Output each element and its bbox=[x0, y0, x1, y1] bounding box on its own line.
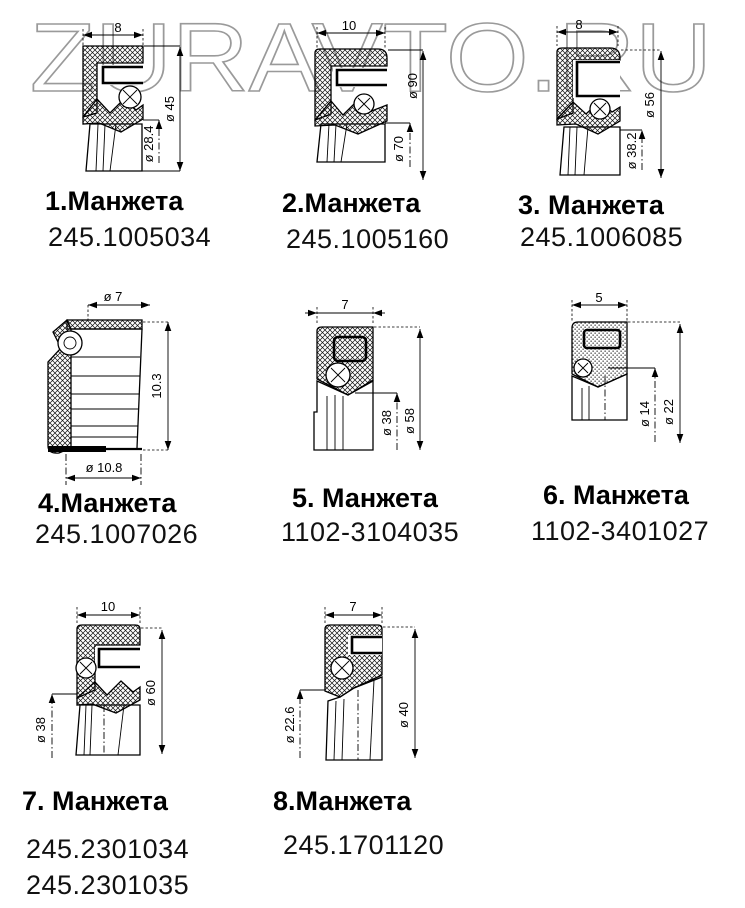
seal-2-dim-width: 10 bbox=[317, 20, 385, 48]
svg-text:ø 90: ø 90 bbox=[405, 73, 420, 99]
seal-7-body bbox=[76, 625, 140, 755]
seal-6-drawing: 5 ø 14 ø 22 bbox=[558, 292, 708, 454]
seal-1-body bbox=[83, 46, 143, 171]
seal-2-caption: 2.Манжета bbox=[282, 188, 420, 219]
seal-6-dim-width: 5 bbox=[572, 292, 627, 321]
seal-7-part-number-2: 245.2301035 bbox=[26, 870, 189, 901]
svg-text:10: 10 bbox=[101, 599, 115, 614]
svg-text:7: 7 bbox=[341, 297, 348, 312]
seal-3-body bbox=[557, 48, 620, 175]
seal-4-body bbox=[48, 320, 142, 453]
seal-8-dim-outer: ø 40 bbox=[383, 627, 415, 758]
seal-2-dim-inner: ø 70 bbox=[385, 123, 410, 167]
seal-4-drawing: ø 7 10.3 ø 10.8 bbox=[30, 288, 190, 492]
seal-1-part-number: 245.1005034 bbox=[48, 222, 211, 253]
seal-4-dim-bottom: ø 10.8 bbox=[66, 454, 141, 485]
svg-text:ø 38: ø 38 bbox=[33, 717, 48, 743]
seal-8-dim-width: 7 bbox=[325, 599, 382, 624]
seal-1-drawing: 8 ø 45 ø 28.4 bbox=[60, 20, 205, 188]
seal-4-caption: 4.Манжета bbox=[38, 488, 176, 519]
seal-1-dim-inner: ø 28.4 bbox=[141, 120, 159, 163]
seal-1-caption: 1.Манжета bbox=[45, 186, 183, 217]
seal-3-dim-width: 8 bbox=[557, 18, 618, 46]
seal-8-dim-inner: ø 22.6 bbox=[282, 690, 325, 758]
seal-5-body bbox=[314, 327, 373, 450]
seal-6-part-number: 1102-3401027 bbox=[531, 516, 709, 547]
svg-text:10: 10 bbox=[342, 20, 356, 33]
svg-text:ø 28.4: ø 28.4 bbox=[141, 126, 156, 163]
svg-text:ø 58: ø 58 bbox=[402, 408, 417, 434]
seal-7-dim-inner: ø 38 bbox=[33, 694, 77, 758]
seal-5-dim-width: 7 bbox=[305, 297, 385, 325]
svg-text:ø 70: ø 70 bbox=[391, 136, 406, 162]
svg-text:ø 38.2: ø 38.2 bbox=[624, 133, 639, 170]
seal-8-caption: 8.Манжета bbox=[273, 786, 411, 817]
seal-6-caption: 6. Манжета bbox=[543, 480, 689, 511]
seal-4-part-number: 245.1007026 bbox=[35, 519, 198, 550]
seal-2-body bbox=[315, 49, 387, 162]
seal-7-part-number: 245.2301034 bbox=[26, 834, 189, 865]
seal-5-part-number: 1102-3104035 bbox=[281, 517, 459, 548]
seal-5-caption: 5. Манжета bbox=[292, 483, 438, 514]
svg-text:ø 45: ø 45 bbox=[162, 96, 177, 122]
svg-text:ø 56: ø 56 bbox=[642, 92, 657, 118]
seal-3-caption: 3. Манжета bbox=[518, 190, 664, 221]
spring-ring bbox=[58, 331, 82, 355]
seal-3-part-number: 245.1006085 bbox=[520, 222, 683, 253]
seal-6-dim-outer: ø 22 bbox=[628, 322, 680, 443]
svg-text:ø 40: ø 40 bbox=[396, 702, 411, 728]
seal-8-body bbox=[325, 625, 382, 760]
seal-7-drawing: 10 ø 38 ø 60 bbox=[28, 598, 198, 778]
seal-1-dim-width: 8 bbox=[83, 20, 143, 45]
seal-2-part-number: 245.1005160 bbox=[286, 224, 449, 255]
svg-text:ø 38: ø 38 bbox=[379, 410, 394, 436]
svg-text:ø 22: ø 22 bbox=[661, 399, 676, 425]
svg-text:ø 60: ø 60 bbox=[143, 680, 158, 706]
seal-3-drawing: 8 ø 56 ø 38.2 bbox=[540, 18, 705, 196]
seal-8-drawing: 7 ø 22.6 ø 40 bbox=[282, 598, 457, 778]
seal-7-dim-outer: ø 60 bbox=[141, 628, 162, 754]
svg-text:8: 8 bbox=[114, 20, 121, 35]
svg-text:8: 8 bbox=[575, 18, 582, 32]
seal-6-body bbox=[572, 322, 627, 420]
seal-7-dim-width: 10 bbox=[77, 599, 140, 624]
seal-4-dim-width: ø 7 bbox=[88, 289, 150, 320]
seal-5-drawing: 7 ø 38 ø 58 bbox=[300, 295, 450, 457]
svg-text:ø 7: ø 7 bbox=[104, 289, 123, 304]
seal-2-drawing: 10 ø 90 ø 70 bbox=[295, 20, 445, 185]
svg-text:10.3: 10.3 bbox=[149, 373, 164, 398]
svg-text:5: 5 bbox=[595, 292, 602, 305]
seal-7-caption: 7. Манжета bbox=[22, 786, 168, 817]
seal-3-dim-inner: ø 38.2 bbox=[620, 130, 642, 170]
seal-8-part-number: 245.1701120 bbox=[283, 830, 444, 861]
svg-text:ø 10.8: ø 10.8 bbox=[86, 460, 123, 475]
svg-text:ø 22.6: ø 22.6 bbox=[282, 707, 297, 744]
seal-4-dim-side: 10.3 bbox=[143, 322, 168, 450]
page: { "watermark": { "text": "ZURAVTO.RU" },… bbox=[0, 0, 745, 908]
svg-text:7: 7 bbox=[349, 599, 356, 614]
svg-text:ø 14: ø 14 bbox=[637, 401, 652, 427]
